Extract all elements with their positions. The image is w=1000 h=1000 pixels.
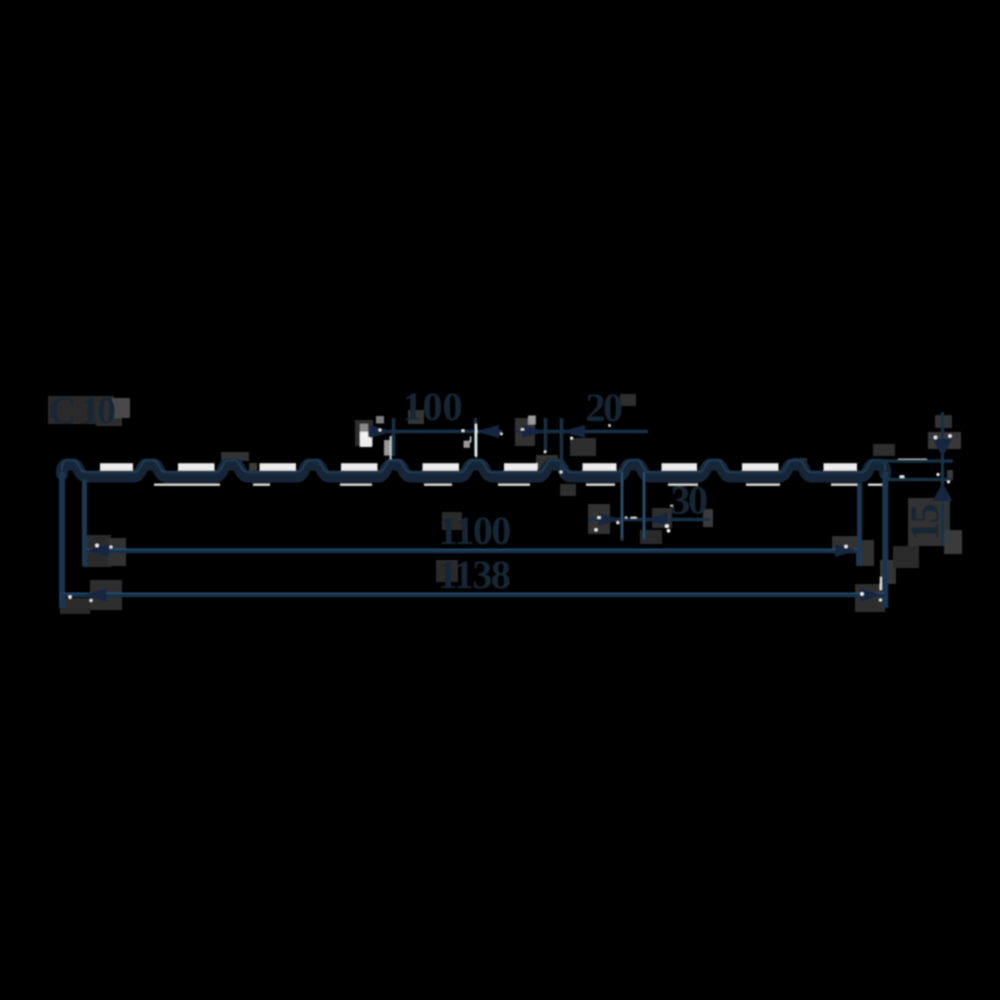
svg-text:1100: 1100 (438, 508, 510, 553)
svg-text:15: 15 (902, 505, 947, 542)
svg-text:20: 20 (586, 385, 623, 430)
svg-text:C 10: C 10 (49, 390, 115, 432)
svg-text:1138: 1138 (438, 552, 510, 597)
svg-text:100: 100 (403, 384, 463, 429)
svg-text:30: 30 (671, 478, 708, 523)
